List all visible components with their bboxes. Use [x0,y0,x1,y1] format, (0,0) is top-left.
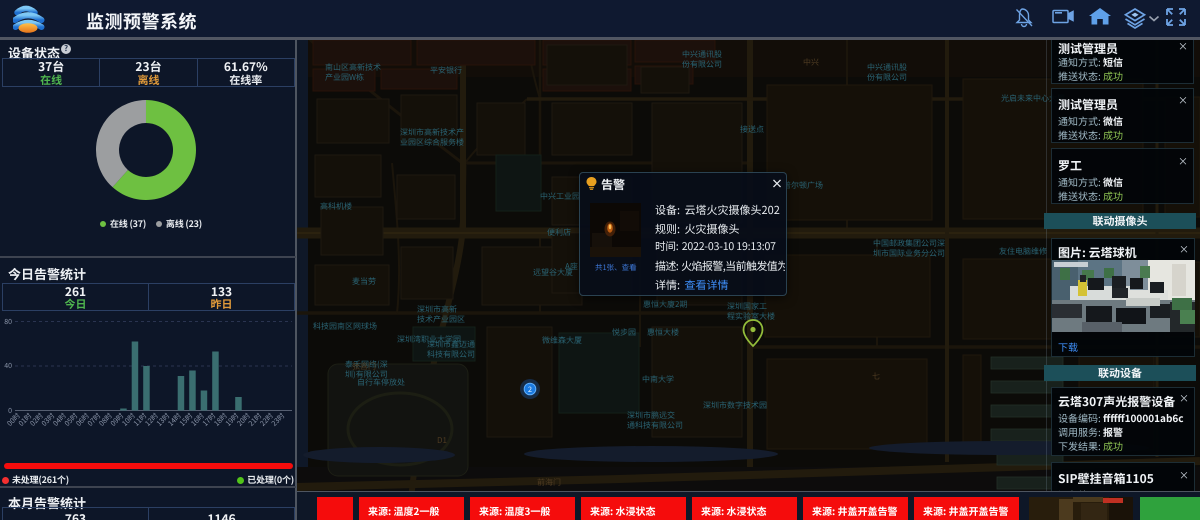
svg-text:友住电脑维修: 友住电脑维修 [999,246,1047,257]
svg-text:悦步园: 悦步园 [612,327,636,338]
svg-text:40: 40 [4,361,12,371]
svg-text:80: 80 [4,317,12,327]
svg-text:中兴: 中兴 [803,57,819,68]
svg-text:中南大学: 中南大学 [642,374,674,385]
svg-text:圳市国际业务分公司: 圳市国际业务分公司 [873,248,945,259]
svg-text:23时: 23时 [270,411,288,429]
svg-text:D1: D1 [437,435,447,446]
svg-text:深圳市数字技术园: 深圳市数字技术园 [703,400,767,411]
svg-text:平安银行: 平安银行 [430,65,462,76]
svg-text:科技有限公司: 科技有限公司 [427,349,475,360]
svg-text:高科机楼: 高科机楼 [320,201,352,212]
svg-text:产业园W栋: 产业园W栋 [325,72,364,83]
svg-text:份有限公司: 份有限公司 [867,72,907,83]
svg-text:业园区综合服务楼: 业园区综合服务楼 [400,137,464,148]
svg-text:技术产业园区: 技术产业园区 [417,314,465,325]
svg-text:远望谷大厦: 远望谷大厦 [533,267,573,278]
svg-text:便利店: 便利店 [547,227,571,238]
svg-text:微维森大厦: 微维森大厦 [542,335,582,346]
svg-text:七: 七 [872,371,880,382]
svg-text:张喜门: 张喜门 [352,361,376,372]
svg-text:前海门: 前海门 [537,477,561,488]
svg-text:中兴工业园: 中兴工业园 [540,191,580,202]
svg-text:通科技有限公司: 通科技有限公司 [627,420,683,431]
svg-text:惠恒大廈2期: 惠恒大廈2期 [643,299,687,310]
svg-text:惠恒大楼: 惠恒大楼 [647,327,679,338]
svg-text:麦当劳: 麦当劳 [352,276,376,287]
svg-text:科技园南区网球场: 科技园南区网球场 [313,321,377,332]
svg-text:份有限公司: 份有限公司 [682,59,722,70]
svg-text:2: 2 [528,384,532,395]
svg-text:接送点: 接送点 [740,124,764,135]
svg-text:普尔顿广场: 普尔顿广场 [783,180,823,191]
